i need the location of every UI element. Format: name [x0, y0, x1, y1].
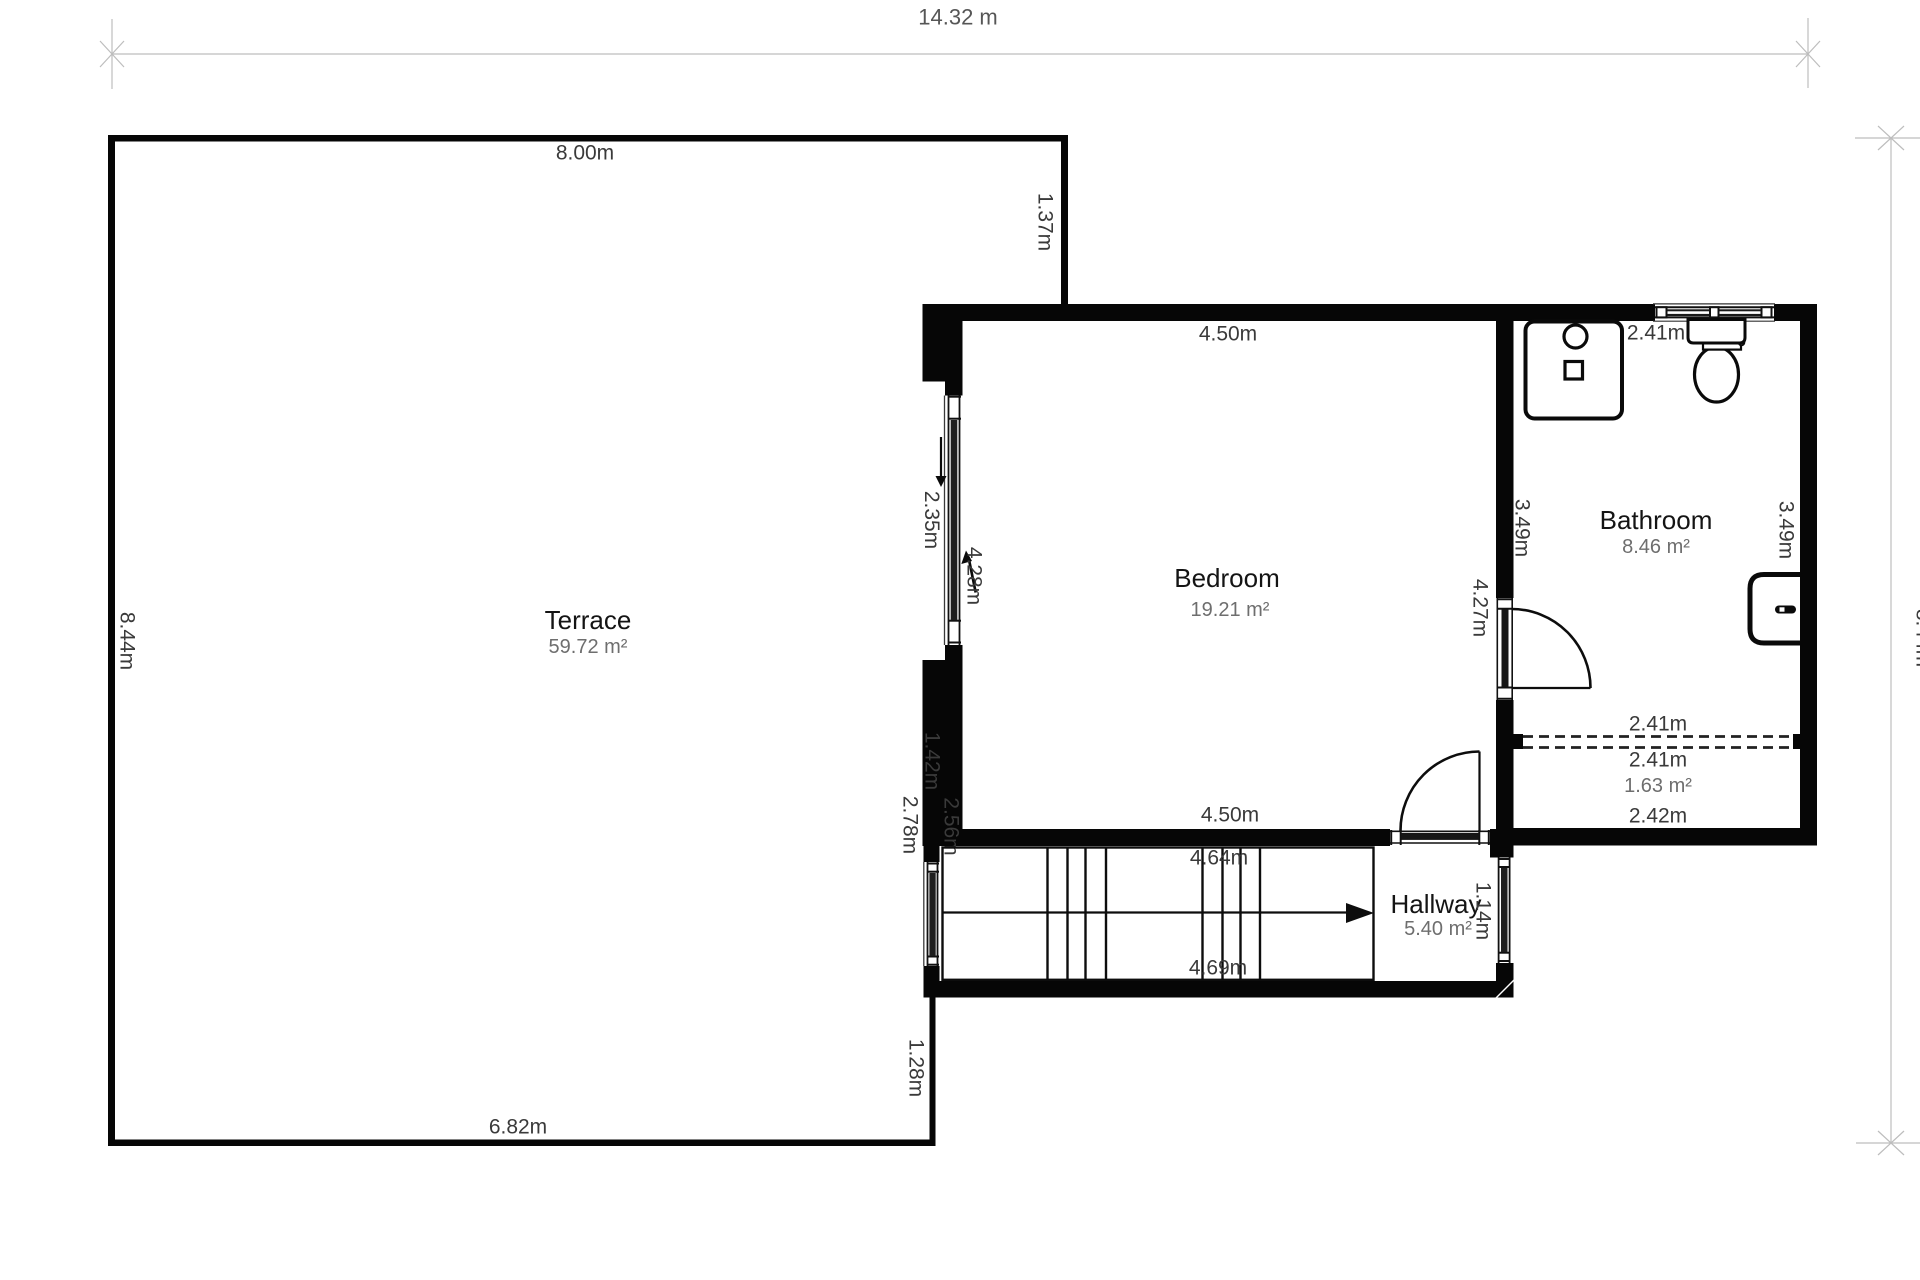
- svg-text:19.21 m²: 19.21 m²: [1191, 599, 1270, 621]
- svg-text:4.69m: 4.69m: [1189, 957, 1247, 980]
- svg-text:2.41m: 2.41m: [1629, 713, 1687, 736]
- svg-text:8.44m: 8.44m: [1912, 609, 1920, 667]
- svg-text:2.78m: 2.78m: [899, 796, 922, 854]
- svg-text:1.28m: 1.28m: [905, 1039, 928, 1097]
- svg-text:3.49m: 3.49m: [1775, 501, 1798, 559]
- svg-text:1.63 m²: 1.63 m²: [1624, 775, 1692, 797]
- svg-text:6.82m: 6.82m: [489, 1116, 547, 1139]
- svg-text:1.14m: 1.14m: [1472, 882, 1495, 940]
- svg-text:2.41m: 2.41m: [1627, 322, 1685, 345]
- svg-text:Bathroom: Bathroom: [1600, 505, 1713, 535]
- svg-text:2.42m: 2.42m: [1629, 805, 1687, 828]
- svg-text:4.64m: 4.64m: [1190, 847, 1248, 870]
- svg-text:3.49m: 3.49m: [1511, 499, 1534, 557]
- svg-text:5.40 m²: 5.40 m²: [1404, 918, 1472, 940]
- svg-text:8.46 m²: 8.46 m²: [1622, 536, 1690, 558]
- svg-text:14.32 m: 14.32 m: [918, 5, 998, 30]
- svg-text:4.28m: 4.28m: [963, 547, 986, 605]
- svg-text:59.72 m²: 59.72 m²: [549, 636, 628, 658]
- svg-text:1.37m: 1.37m: [1034, 193, 1057, 251]
- svg-text:8.44m: 8.44m: [116, 612, 139, 670]
- svg-text:8.00m: 8.00m: [556, 142, 614, 165]
- svg-text:4.50m: 4.50m: [1201, 804, 1259, 827]
- svg-text:Hallway: Hallway: [1390, 889, 1481, 919]
- svg-text:Bedroom: Bedroom: [1174, 563, 1280, 593]
- svg-text:4.50m: 4.50m: [1199, 323, 1257, 346]
- svg-text:Terrace: Terrace: [545, 605, 632, 635]
- svg-text:2.35m: 2.35m: [920, 491, 943, 549]
- svg-text:2.41m: 2.41m: [1629, 749, 1687, 772]
- svg-text:1.42m: 1.42m: [921, 732, 944, 790]
- svg-text:4.27m: 4.27m: [1469, 579, 1492, 637]
